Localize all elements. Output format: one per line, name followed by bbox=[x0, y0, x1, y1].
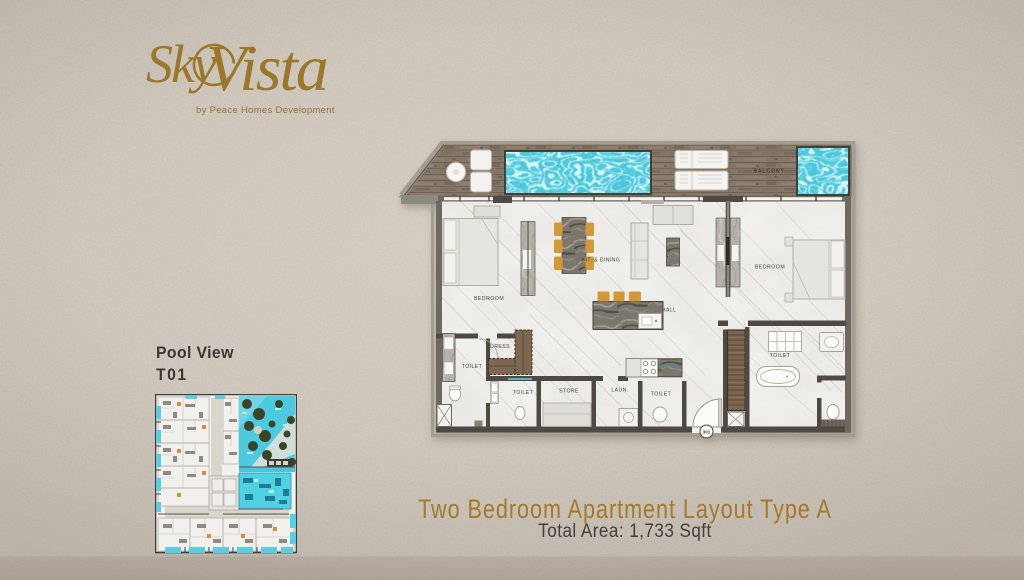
svg-text:301: 301 bbox=[703, 430, 711, 435]
svg-text:KIT. & DINING: KIT. & DINING bbox=[582, 258, 621, 264]
svg-text:TOILET: TOILET bbox=[513, 390, 534, 396]
svg-text:BEDROOM: BEDROOM bbox=[755, 265, 785, 271]
svg-text:TOILET: TOILET bbox=[651, 392, 672, 398]
svg-text:LAUN.: LAUN. bbox=[611, 388, 628, 394]
svg-text:TOILET: TOILET bbox=[770, 353, 791, 359]
svg-text:STORE: STORE bbox=[559, 389, 579, 395]
svg-text:BEDROOM: BEDROOM bbox=[474, 296, 504, 302]
svg-text:TOILET: TOILET bbox=[462, 364, 483, 370]
svg-text:BALCONY: BALCONY bbox=[753, 169, 785, 175]
svg-text:HALL: HALL bbox=[662, 308, 677, 314]
